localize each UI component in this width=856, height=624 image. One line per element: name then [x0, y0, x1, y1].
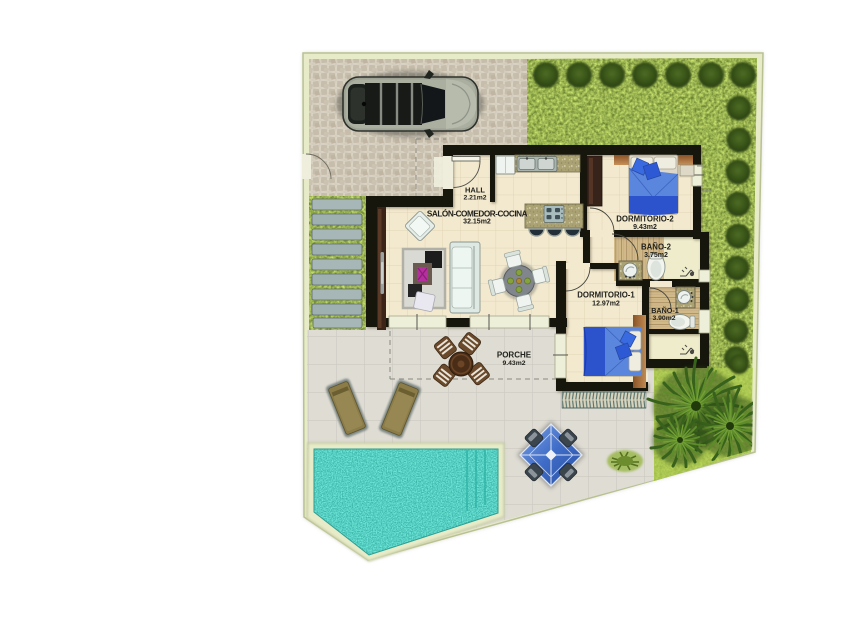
svg-text:BAÑO-2: BAÑO-2 [641, 243, 672, 252]
svg-text:HALL: HALL [465, 186, 485, 195]
svg-text:3.90m2: 3.90m2 [652, 315, 675, 322]
svg-text:9.43m2: 9.43m2 [633, 224, 657, 231]
svg-text:SALÓN-COMEDOR-COCINA: SALÓN-COMEDOR-COCINA [427, 208, 528, 219]
svg-text:9.43m2: 9.43m2 [502, 360, 525, 367]
svg-text:12.97m2: 12.97m2 [592, 301, 620, 308]
svg-text:BAÑO-1: BAÑO-1 [651, 306, 679, 315]
svg-text:DORMITORIO-1: DORMITORIO-1 [577, 291, 635, 300]
svg-text:32.15m2: 32.15m2 [463, 219, 491, 226]
svg-text:DORMITORIO-2: DORMITORIO-2 [616, 215, 674, 224]
svg-text:3.75m2: 3.75m2 [644, 252, 668, 259]
svg-text:2.21m2: 2.21m2 [463, 195, 486, 202]
svg-text:PORCHE: PORCHE [497, 351, 532, 360]
